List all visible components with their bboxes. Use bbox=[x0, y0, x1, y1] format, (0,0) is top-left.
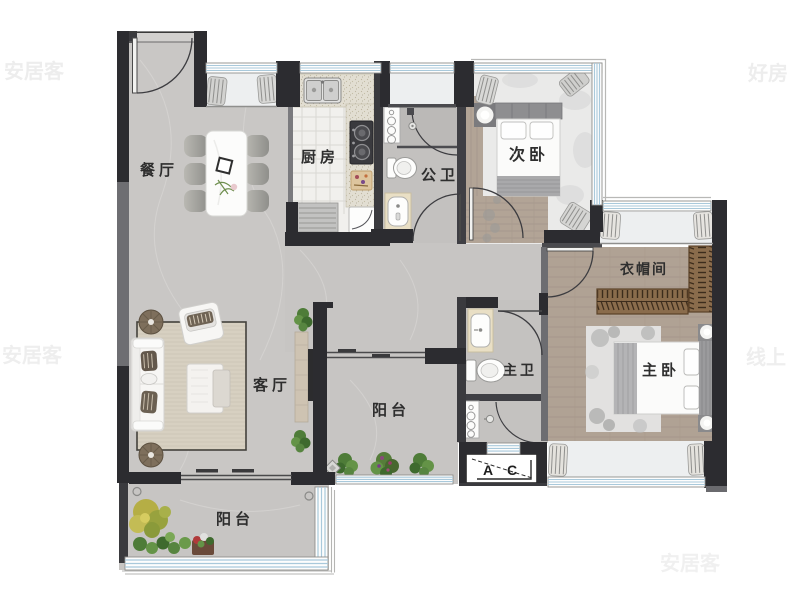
svg-text:阳台: 阳台 bbox=[216, 510, 254, 528]
svg-text:安居客: 安居客 bbox=[4, 59, 65, 83]
svg-text:安居客: 安居客 bbox=[2, 343, 63, 367]
svg-text:主卧: 主卧 bbox=[642, 361, 680, 379]
svg-text:线上: 线上 bbox=[746, 345, 786, 369]
svg-text:公卫: 公卫 bbox=[421, 167, 459, 184]
svg-text:餐厅: 餐厅 bbox=[140, 161, 178, 179]
svg-text:A: A bbox=[483, 462, 493, 478]
svg-text:客厅: 客厅 bbox=[252, 376, 291, 394]
svg-text:阳台: 阳台 bbox=[372, 401, 410, 419]
svg-text:C: C bbox=[507, 462, 517, 478]
svg-text:次卧: 次卧 bbox=[509, 145, 549, 164]
svg-text:厨房: 厨房 bbox=[301, 148, 339, 166]
svg-text:好房: 好房 bbox=[747, 61, 788, 85]
svg-text:衣帽间: 衣帽间 bbox=[620, 261, 668, 277]
svg-text:安居客: 安居客 bbox=[660, 551, 721, 575]
svg-text:主卫: 主卫 bbox=[503, 362, 537, 378]
